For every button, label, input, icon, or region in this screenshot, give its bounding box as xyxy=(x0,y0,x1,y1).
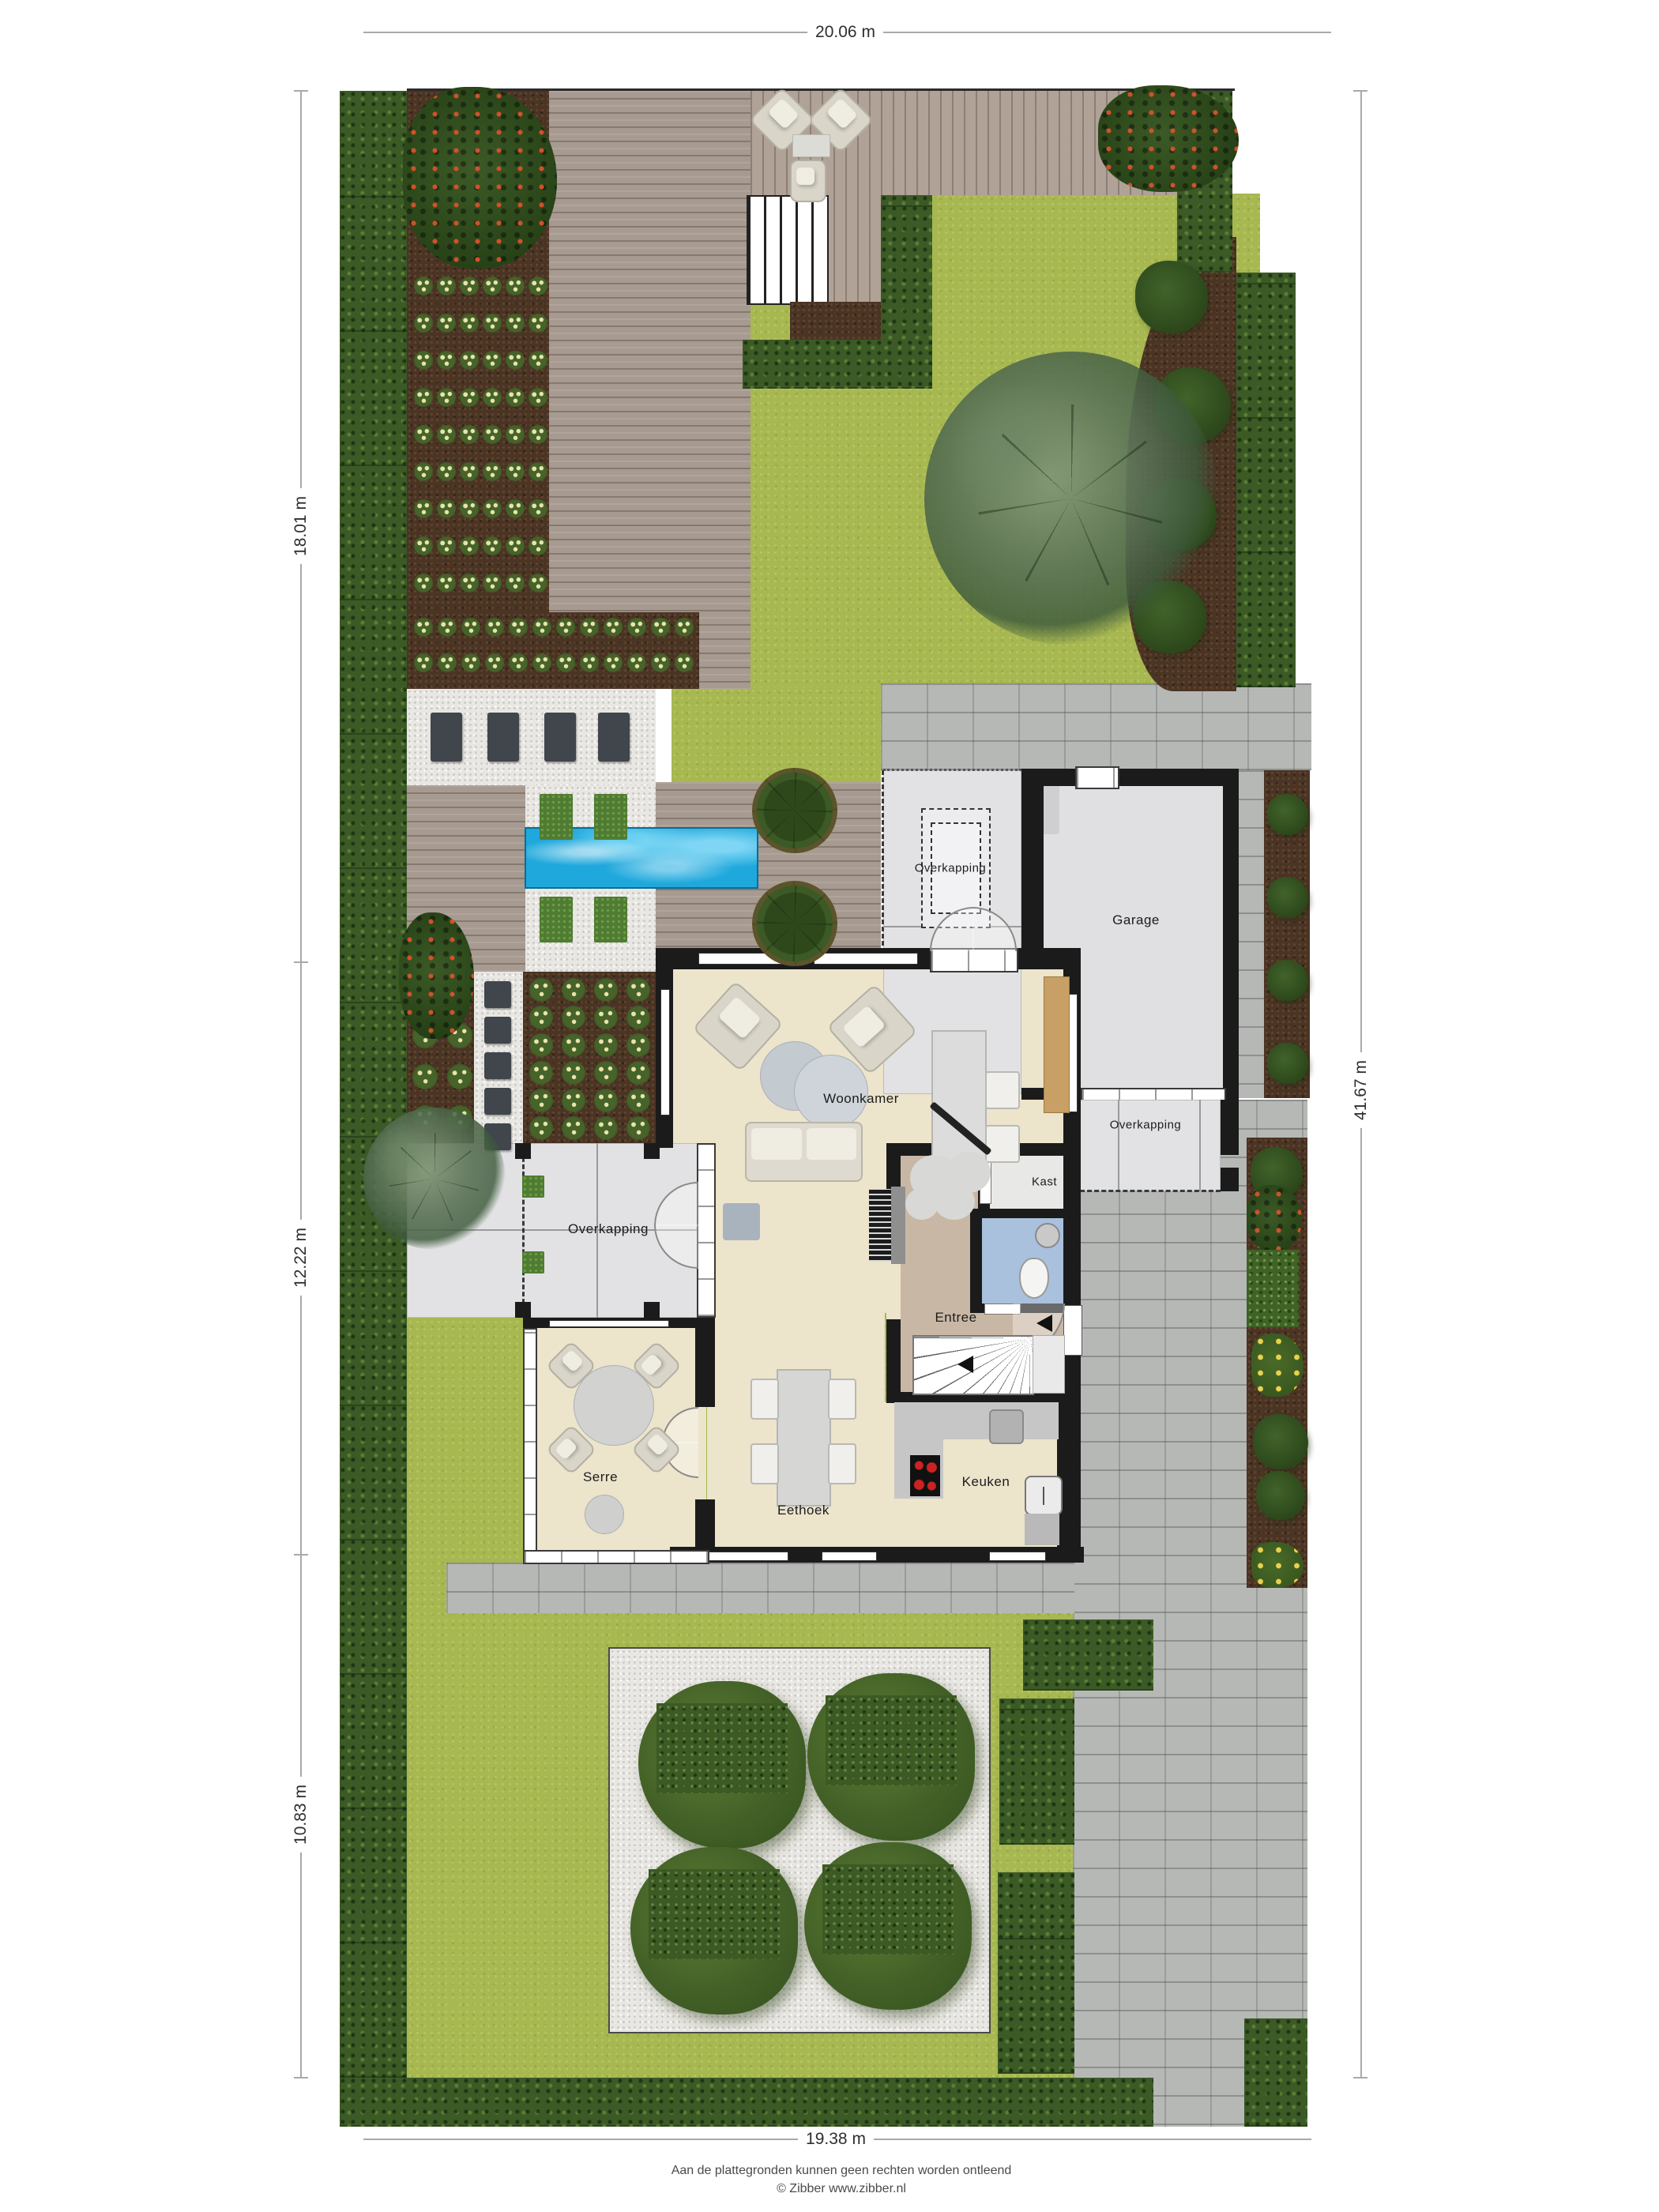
tick-left-1 xyxy=(294,90,308,92)
coat-rack-4 xyxy=(905,1188,939,1220)
disclaimer-line1: Aan de plattegronden kunnen geen rechten… xyxy=(671,2161,1012,2180)
label-garage: Garage xyxy=(1112,912,1160,928)
deck-upper-strip xyxy=(822,195,881,302)
plan-top-edge xyxy=(407,88,1235,91)
serre-table xyxy=(574,1365,654,1446)
deck-terrace xyxy=(549,91,750,689)
overkapping-top-dotted-edge xyxy=(883,769,1021,771)
front-door xyxy=(1063,1305,1082,1356)
hedge-block-drive1 xyxy=(1023,1619,1153,1691)
box-hedge xyxy=(1247,1250,1299,1327)
label-overkapping-right: Overkapping xyxy=(1110,1119,1182,1132)
label-overkapping-top: Overkapping xyxy=(915,862,987,875)
overkapping-right-line2 xyxy=(1199,1100,1201,1191)
window-south-2 xyxy=(822,1552,877,1561)
plant-icon xyxy=(562,1006,585,1029)
shrub-icon xyxy=(1267,794,1308,835)
flower-cluster-icon xyxy=(1251,1334,1303,1397)
label-serre: Serre xyxy=(583,1469,618,1485)
window-south-3 xyxy=(989,1552,1046,1561)
plant-icon xyxy=(651,618,670,637)
door-north-living xyxy=(930,948,1018,972)
soil-patch-steps xyxy=(790,302,881,340)
tick-right-2 xyxy=(1353,2077,1367,2078)
plant-icon xyxy=(506,574,525,592)
toilet-sink xyxy=(1035,1223,1060,1248)
disclaimer-line2: © Zibber www.zibber.nl xyxy=(671,2180,1012,2198)
grass-patch xyxy=(522,1251,544,1273)
side-table xyxy=(723,1203,760,1240)
kitchen-stove xyxy=(910,1455,940,1496)
paving-slab xyxy=(484,1088,511,1115)
plant-icon xyxy=(483,462,502,481)
planter-tree-icon xyxy=(752,768,837,853)
plant-icon xyxy=(414,499,433,518)
plant-icon xyxy=(556,618,575,637)
high-chair-2 xyxy=(985,1125,1020,1163)
sofa xyxy=(745,1122,863,1182)
plant-icon xyxy=(438,618,457,637)
tree-icon xyxy=(924,352,1218,645)
plant-icon xyxy=(414,462,433,481)
plant-icon xyxy=(461,653,480,672)
serre-wall-east-top xyxy=(695,1328,715,1407)
plant-icon xyxy=(562,978,585,1002)
window-band-west-lower xyxy=(697,1143,716,1318)
garage-door xyxy=(1075,766,1119,789)
serre-wall-east-bottom xyxy=(695,1499,715,1550)
grass-patch xyxy=(540,794,573,840)
overkapping-post-3 xyxy=(515,1302,531,1318)
paving-slab xyxy=(484,981,511,1008)
plant-icon xyxy=(485,653,504,672)
wall-kast-south xyxy=(970,1209,1068,1218)
plant-icon xyxy=(562,1089,585,1112)
plant-icon xyxy=(529,314,547,333)
grass-patch xyxy=(540,897,573,942)
plant-icon xyxy=(509,653,528,672)
plant-icon xyxy=(506,276,525,295)
plant-icon xyxy=(532,653,551,672)
media-cabinet xyxy=(869,1189,891,1262)
label-woonkamer: Woonkamer xyxy=(823,1091,899,1107)
hedge-border-bottom-right xyxy=(1244,2018,1307,2127)
plant-icon xyxy=(509,618,528,637)
plant-icon xyxy=(483,574,502,592)
shrub-icon xyxy=(1256,1471,1305,1520)
plant-icon xyxy=(414,351,433,370)
media-panel xyxy=(891,1187,905,1264)
lawn-middle xyxy=(671,687,881,784)
plant-icon xyxy=(556,653,575,672)
plant-icon xyxy=(460,536,479,555)
high-table xyxy=(931,1030,987,1172)
plant-icon xyxy=(483,276,502,295)
plant-icon xyxy=(594,1116,618,1140)
tree-icon xyxy=(363,1108,506,1250)
site-plan: Woonkamer Overkapping Garage Overkapping… xyxy=(0,0,1659,2212)
kitchen-oven xyxy=(1025,1476,1063,1515)
kitchen-cabinet-block xyxy=(1025,1514,1059,1545)
plant-icon xyxy=(651,653,670,672)
plant-icon xyxy=(506,499,525,518)
planter-tree-icon xyxy=(752,881,837,966)
floorplan-page: Woonkamer Overkapping Garage Overkapping… xyxy=(0,0,1659,2212)
plant-icon xyxy=(506,351,525,370)
plant-icon xyxy=(414,314,433,333)
hedge-border-bottom xyxy=(340,2078,1153,2127)
plant-icon xyxy=(483,314,502,333)
garden-bush-icon xyxy=(807,1673,975,1841)
plant-icon xyxy=(414,425,433,444)
plant-icon xyxy=(414,653,433,672)
paving-north-of-garage xyxy=(881,683,1311,770)
plant-icon xyxy=(604,653,623,672)
plant-icon xyxy=(414,276,433,295)
garden-bush-icon xyxy=(804,1842,972,2010)
plant-icon xyxy=(627,653,646,672)
plant-icon xyxy=(437,536,456,555)
dimension-left-top: 18.01 m xyxy=(292,488,310,564)
garden-bush-icon xyxy=(638,1681,806,1849)
plant-icon xyxy=(414,536,433,555)
plant-icon xyxy=(562,1061,585,1085)
shrub-icon xyxy=(1253,1414,1308,1469)
plant-icon xyxy=(626,978,650,1002)
shrub-icon xyxy=(1267,877,1308,918)
tick-right-1 xyxy=(1353,90,1367,92)
plant-icon xyxy=(594,1061,618,1085)
plant-icon xyxy=(529,499,547,518)
plant-icon xyxy=(562,1033,585,1057)
plant-icon xyxy=(460,276,479,295)
shrub-icon xyxy=(1267,960,1308,1001)
kitchen-sink xyxy=(989,1409,1024,1444)
plant-icon xyxy=(626,1116,650,1140)
plant-icon xyxy=(594,978,618,1002)
paving-slab xyxy=(431,713,462,762)
plant-icon xyxy=(461,618,480,637)
shrub-icon xyxy=(1267,1043,1308,1084)
plant-icon xyxy=(485,618,504,637)
berry-bush-icon xyxy=(403,87,557,269)
plant-icon xyxy=(626,1006,650,1029)
plant-icon xyxy=(529,978,553,1002)
hedge-border-left xyxy=(340,91,407,2078)
plant-icon xyxy=(529,425,547,444)
plant-icon xyxy=(529,536,547,555)
plant-icon xyxy=(529,351,547,370)
window-south-1 xyxy=(698,1552,788,1561)
garage-wall-west xyxy=(1021,769,1044,950)
plant-icon xyxy=(580,653,599,672)
overkapping-left-dashed-edge xyxy=(522,1143,525,1318)
garage-wall-south-stub xyxy=(1021,1088,1044,1100)
flower-cluster-icon xyxy=(1251,1542,1303,1588)
plant-icon xyxy=(460,388,479,407)
plant-icon xyxy=(437,314,456,333)
dining-chair-2 xyxy=(750,1443,779,1484)
paving-south-of-house xyxy=(446,1563,1074,1613)
plant-icon xyxy=(437,425,456,444)
disclaimer: Aan de plattegronden kunnen geen rechten… xyxy=(671,2161,1012,2198)
plant-icon xyxy=(529,1089,553,1112)
label-entree: Entree xyxy=(935,1310,976,1326)
plant-icon xyxy=(529,1006,553,1029)
plant-icon xyxy=(437,499,456,518)
berry-bush-icon xyxy=(399,912,474,1039)
dimension-bottom: 19.38 m xyxy=(798,2130,874,2149)
paving-slab xyxy=(484,1017,511,1044)
plant-icon xyxy=(529,1116,553,1140)
plant-icon xyxy=(414,618,433,637)
plant-icon xyxy=(604,618,623,637)
dining-table xyxy=(777,1369,831,1507)
plant-icon xyxy=(414,574,433,592)
plant-icon xyxy=(594,1033,618,1057)
plant-icon xyxy=(506,536,525,555)
plant-icon xyxy=(437,574,456,592)
plant-icon xyxy=(412,1064,438,1089)
garage-wall-east xyxy=(1223,769,1239,1100)
plant-icon xyxy=(460,462,479,481)
plant-icon xyxy=(414,388,433,407)
plant-icon xyxy=(437,462,456,481)
dimension-top: 20.06 m xyxy=(807,23,883,42)
serre-window-south xyxy=(523,1550,709,1564)
overkapping-top-dashed-edge xyxy=(882,770,884,946)
hedge-block-drive2 xyxy=(999,1698,1074,1845)
serre-window-north xyxy=(549,1320,669,1327)
plant-icon xyxy=(529,276,547,295)
overkapping-post-1 xyxy=(515,1143,531,1159)
dining-chair-1 xyxy=(750,1379,779,1420)
plant-icon xyxy=(626,1061,650,1085)
overkapping-right-post xyxy=(1221,1100,1239,1155)
hedge-block-upper xyxy=(881,195,932,341)
garage-floor-lower xyxy=(1081,950,1223,1088)
plant-icon xyxy=(529,1061,553,1085)
plant-icon xyxy=(506,462,525,481)
plant-icon xyxy=(506,314,525,333)
plant-icon xyxy=(594,1006,618,1029)
overkapping-post-4 xyxy=(644,1302,660,1318)
plant-icon xyxy=(580,618,599,637)
grass-patch xyxy=(594,794,627,840)
garden-bush-icon xyxy=(630,1847,798,2014)
serre-window-west xyxy=(523,1328,537,1553)
staircase-arrow-icon xyxy=(957,1356,973,1373)
plant-icon xyxy=(532,618,551,637)
plant-icon xyxy=(460,499,479,518)
plant-icon xyxy=(483,388,502,407)
dimension-left-middle: 12.22 m xyxy=(292,1220,310,1296)
plant-icon xyxy=(460,314,479,333)
plant-icon xyxy=(626,1089,650,1112)
plant-icon xyxy=(675,618,694,637)
plant-icon xyxy=(626,1033,650,1057)
plant-icon xyxy=(483,351,502,370)
sideboard-wood xyxy=(1044,976,1070,1113)
paving-slab xyxy=(544,713,576,762)
hedge-ne-side xyxy=(1236,273,1296,687)
dining-chair-4 xyxy=(828,1443,856,1484)
plant-icon xyxy=(483,499,502,518)
grass-patch xyxy=(594,897,627,942)
wall-toilet-west xyxy=(970,1218,982,1303)
plant-icon xyxy=(437,276,456,295)
plant-icon xyxy=(594,1089,618,1112)
plant-icon xyxy=(529,462,547,481)
berry-bush-icon xyxy=(1247,1185,1302,1252)
tick-left-2 xyxy=(294,961,308,963)
paving-east-of-garage xyxy=(1237,770,1264,1098)
plant-icon xyxy=(627,618,646,637)
overkapping-right-line1 xyxy=(1118,1100,1119,1191)
plant-icon xyxy=(529,574,547,592)
coat-rack-3 xyxy=(934,1183,975,1220)
plant-icon xyxy=(438,653,457,672)
berry-bush-icon xyxy=(1098,85,1239,192)
dining-chair-3 xyxy=(828,1379,856,1420)
tick-left-3 xyxy=(294,1554,308,1556)
plant-icon xyxy=(675,653,694,672)
plant-icon xyxy=(460,351,479,370)
paving-slab xyxy=(487,713,519,762)
label-keuken: Keuken xyxy=(962,1474,1010,1490)
label-overkapping-left: Overkapping xyxy=(568,1221,649,1237)
lounge-table xyxy=(792,134,830,157)
plant-icon xyxy=(483,425,502,444)
plant-icon xyxy=(437,388,456,407)
label-eethoek: Eethoek xyxy=(777,1503,829,1518)
dimension-left-bottom: 10.83 m xyxy=(292,1777,310,1853)
entry-arrow-icon xyxy=(1036,1315,1052,1332)
window-west-living xyxy=(660,989,670,1115)
toilet-wc xyxy=(1019,1258,1049,1299)
tick-left-4 xyxy=(294,2077,308,2078)
plant-icon xyxy=(437,351,456,370)
overkapping-right-dashed-edge xyxy=(1073,1190,1221,1192)
garage-wall-north xyxy=(1021,769,1239,786)
staircase xyxy=(912,1335,1034,1395)
overkapping-right-floor xyxy=(1073,1100,1221,1191)
hedge-band-upper xyxy=(743,340,932,389)
plant-icon xyxy=(529,1033,553,1057)
high-chair-1 xyxy=(985,1071,1020,1109)
stair-niche xyxy=(1033,1335,1065,1394)
lounge-chair-3 xyxy=(790,160,826,202)
paving-slab xyxy=(598,713,630,762)
plant-icon xyxy=(460,574,479,592)
overkapping-right-post2 xyxy=(1221,1168,1239,1191)
plant-icon xyxy=(447,1064,472,1089)
paving-slab xyxy=(484,1052,511,1079)
plant-icon xyxy=(529,388,547,407)
label-kast: Kast xyxy=(1032,1176,1057,1189)
plant-icon xyxy=(506,425,525,444)
deck-steps xyxy=(747,195,829,305)
shrub-icon xyxy=(1135,261,1208,333)
plant-icon xyxy=(460,425,479,444)
dimension-right: 41.67 m xyxy=(1352,1052,1371,1128)
plant-icon xyxy=(506,388,525,407)
plant-icon xyxy=(483,536,502,555)
grass-patch xyxy=(522,1176,544,1198)
hedge-block-drive3 xyxy=(998,1872,1074,2074)
window-north-2 xyxy=(814,953,918,965)
plant-icon xyxy=(562,1116,585,1140)
serre-side-table xyxy=(585,1495,624,1534)
